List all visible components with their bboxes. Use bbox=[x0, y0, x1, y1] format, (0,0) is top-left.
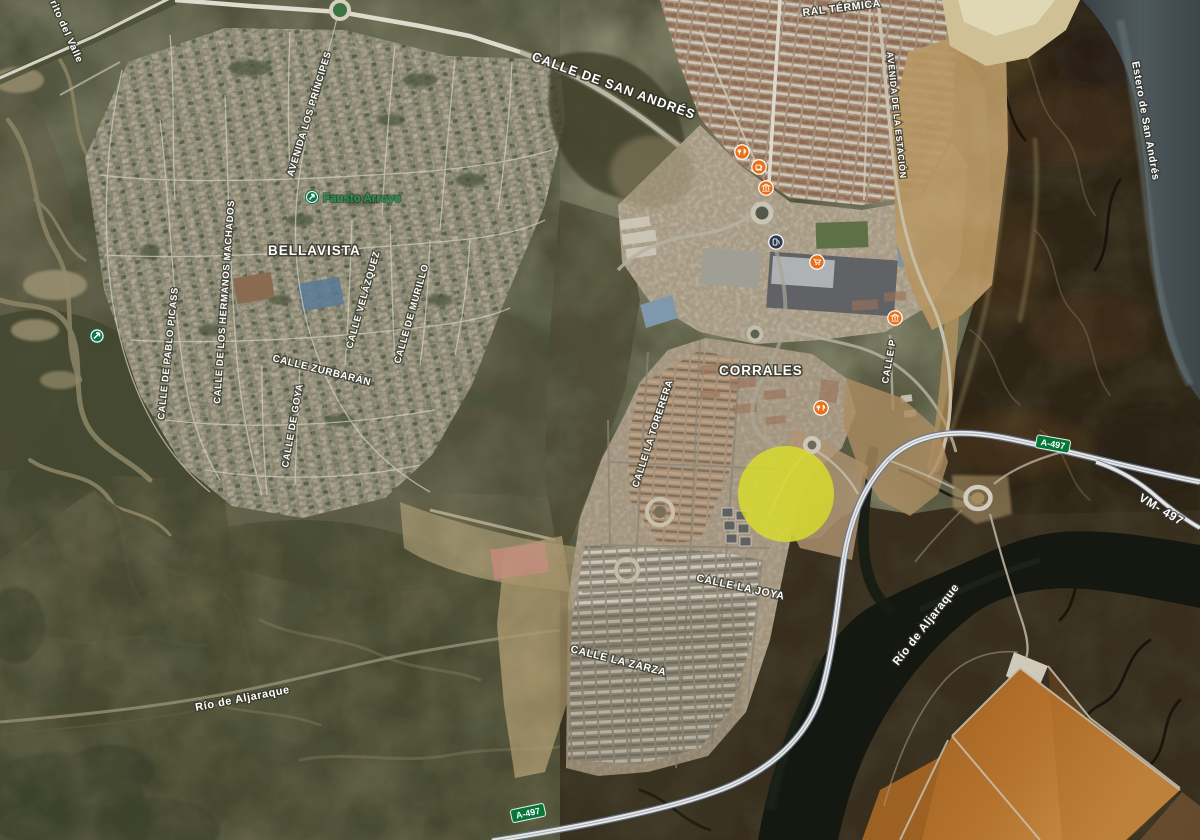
svg-text:Fausto Arroyo: Fausto Arroyo bbox=[323, 193, 401, 205]
svg-text:BELLAVISTA: BELLAVISTA bbox=[268, 243, 361, 258]
svg-text:CORRALES: CORRALES bbox=[719, 363, 803, 378]
